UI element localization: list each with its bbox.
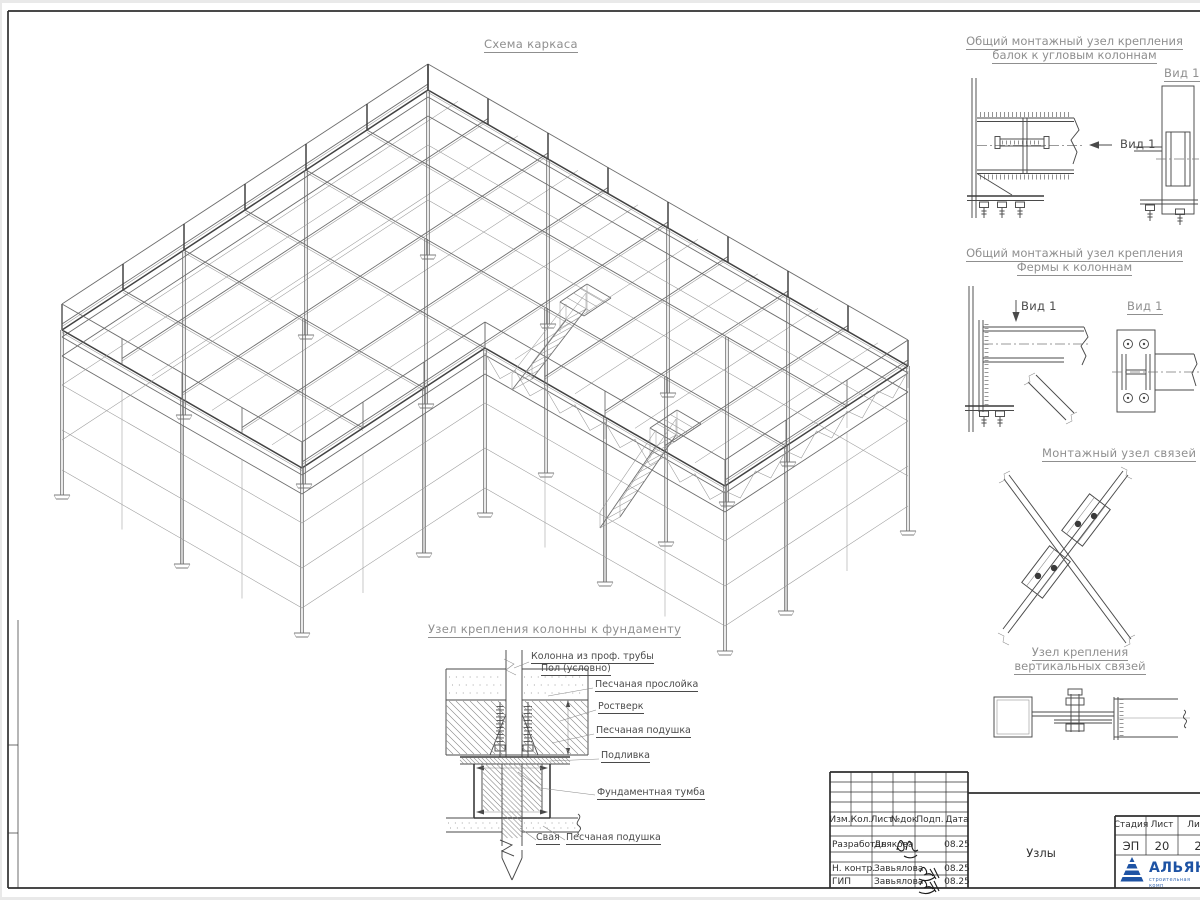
tb-name-gip: Завьялова	[874, 877, 923, 887]
drawing-sheet: Схема каркаса Общий монтажный узел крепл…	[0, 0, 1200, 900]
label-pile: Свая	[536, 832, 560, 845]
tb-header-data: Дата	[945, 815, 968, 825]
tb-date-ncontrol: 08.25	[944, 864, 970, 874]
tb-name-developer: Дьякова	[874, 840, 914, 850]
label-grillage: Ростверк	[598, 701, 644, 714]
tb-header-kol: Кол.	[851, 815, 872, 825]
detail1-title-line2: балок к угловым колоннам	[992, 48, 1156, 64]
tb-date-gip: 08.25	[944, 877, 970, 887]
label-floor: Пол (условно)	[541, 663, 611, 676]
detail-truss-column-drawing	[965, 286, 1199, 432]
tb-name-ncontrol: Завьялова	[874, 864, 923, 874]
page-edge-top	[0, 0, 1200, 3]
detail-foundation-drawing	[446, 650, 599, 880]
company-logo-icon	[1121, 857, 1144, 882]
tb-stage-label: Стадия	[1114, 820, 1149, 830]
title-block	[830, 772, 1200, 894]
detail2-title-line2: Фермы к колоннам	[1017, 260, 1132, 276]
tb-sheet-label: Лист	[1151, 820, 1174, 830]
tb-date-developer: 08.25	[944, 840, 970, 850]
drawing-canvas	[0, 0, 1200, 900]
frame-scheme-drawing	[54, 64, 916, 655]
tb-role-ncontrol: Н. контр.	[832, 864, 875, 874]
detail2-view-ref: Вид 1	[1021, 299, 1057, 313]
label-pedestal: Фундаментная тумба	[597, 787, 705, 800]
detail3-title: Монтажный узел связей	[1042, 446, 1196, 462]
detail-brace-splice-drawing	[998, 467, 1135, 647]
detail-vertical-brace-drawing	[994, 689, 1190, 740]
main-title: Схема каркаса	[484, 37, 578, 53]
label-grout: Подливка	[601, 750, 650, 763]
tb-sheets-value: 2	[1194, 839, 1200, 853]
tb-header-podp: Подп.	[916, 815, 943, 825]
label-sand-cushion: Песчаная подушка	[596, 725, 691, 738]
label-sand-cushion2: Песчаная подушка	[566, 832, 661, 845]
detail4-title-line2: вертикальных связей	[1014, 659, 1145, 675]
tb-sheet-value: 20	[1155, 839, 1170, 853]
tb-header-ndok: №док	[891, 815, 918, 825]
detail2-view-title: Вид 1	[1127, 299, 1163, 315]
page-edge-left	[0, 0, 2, 900]
tb-doc-name: Узлы	[1026, 846, 1056, 860]
tb-role-gip: ГИП	[832, 877, 851, 887]
company-logo-subtext: строительная комп	[1149, 877, 1200, 889]
foundation-title: Узел крепления колонны к фундаменту	[428, 622, 681, 638]
company-logo-text: АЛЬЯН	[1149, 860, 1200, 876]
tb-sheets-label: Лис	[1187, 820, 1200, 830]
detail-corner-beam-drawing	[967, 78, 1199, 225]
detail1-view-title: Вид 1	[1164, 66, 1200, 82]
tb-stage-value: ЭП	[1123, 839, 1140, 853]
detail1-view-ref: Вид 1	[1120, 137, 1156, 151]
tb-header-izm: Изм.	[829, 815, 850, 825]
label-sand-layer: Песчаная прослойка	[595, 679, 698, 692]
